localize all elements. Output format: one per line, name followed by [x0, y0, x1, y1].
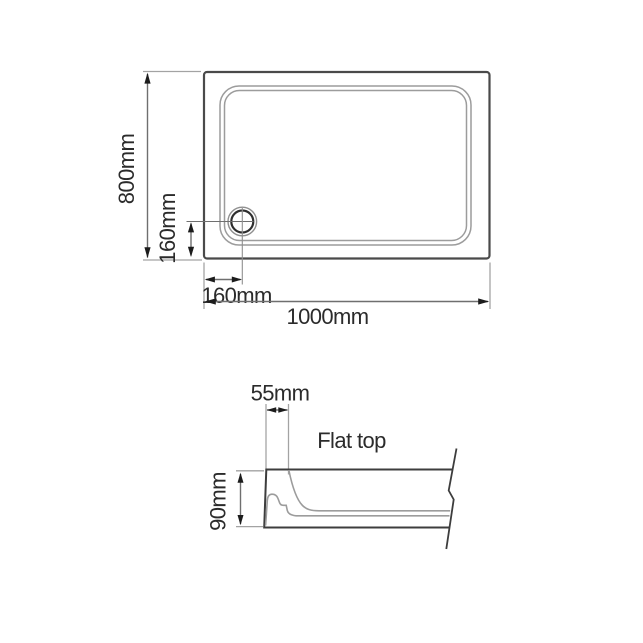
- dim-label-90mm: 90mm: [206, 472, 231, 531]
- arrowhead-icon: [278, 407, 288, 413]
- arrowhead-icon: [232, 277, 242, 283]
- dim-drain-offset-vertical-160: 160mm: [155, 193, 194, 263]
- tray-inner-slope-line: [289, 470, 450, 511]
- dim-label-800mm: 800mm: [114, 134, 139, 204]
- dim-rim-width-55: 55mm: [251, 381, 310, 475]
- arrowhead-icon: [188, 222, 194, 232]
- technical-drawing-page: 800mm 160mm 160mm: [0, 0, 643, 643]
- dim-label-160mm-vertical: 160mm: [155, 193, 180, 263]
- flat-top-label: Flat top: [317, 428, 386, 453]
- arrowhead-icon: [238, 473, 244, 483]
- dim-label-160mm-horizontal: 160mm: [201, 283, 271, 308]
- arrowhead-icon: [267, 407, 277, 413]
- arrowhead-icon: [144, 73, 150, 84]
- break-line: [446, 449, 456, 550]
- dim-label-55mm: 55mm: [251, 381, 310, 406]
- tray-lip-profile-line: [266, 494, 296, 525]
- plan-view: 800mm 160mm 160mm: [114, 72, 490, 330]
- tray-section-outline: [264, 470, 452, 528]
- arrowhead-icon: [478, 298, 489, 304]
- arrowhead-icon: [205, 277, 215, 283]
- arrowhead-icon: [188, 247, 194, 257]
- dim-label-1000mm: 1000mm: [287, 304, 369, 329]
- arrowhead-icon: [144, 247, 150, 258]
- arrowhead-icon: [238, 515, 244, 525]
- section-view: 55mm Flat top 90mm: [206, 381, 457, 549]
- dim-section-height-90: 90mm: [206, 471, 264, 531]
- shower-tray-dimension-drawing: 800mm 160mm 160mm: [0, 0, 643, 643]
